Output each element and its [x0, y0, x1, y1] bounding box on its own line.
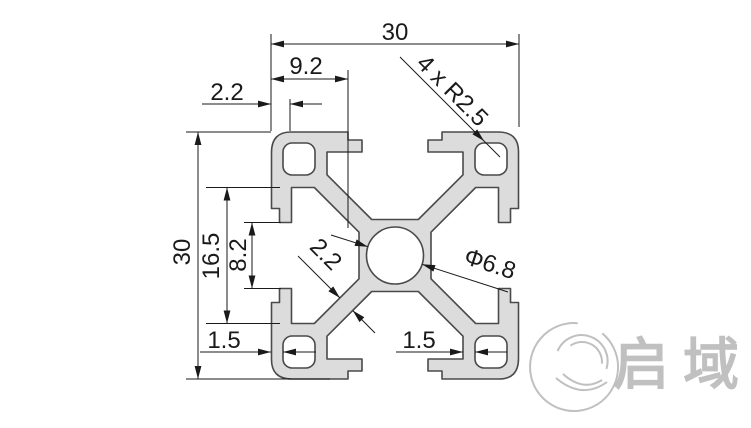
dimension-top-wall: 2.2 [202, 79, 322, 131]
brand-logo: 启域 [530, 323, 751, 411]
dim-label-overall-width: 30 [382, 19, 409, 46]
arrowhead [224, 311, 231, 324]
dim-label-slot-opening: 8.2 [225, 238, 252, 271]
arrowhead [290, 101, 303, 108]
arrowhead [258, 349, 271, 356]
arrowhead [271, 76, 284, 83]
logo-q-inner-arc [571, 342, 602, 364]
arrowhead [249, 223, 256, 236]
dim-label-overall-height: 30 [169, 239, 196, 266]
dim-label-center-bore: Φ6.8 [461, 243, 519, 285]
dim-label-web-thickness: 2.2 [304, 233, 347, 276]
arrowhead [258, 101, 271, 108]
arrowhead [271, 41, 284, 48]
dim-label-channel-inner-width: 16.5 [198, 233, 225, 280]
extrusion-profile-drawing: 启域 30 9.2 2.2 4 x R2.5 [0, 0, 751, 428]
center-bore-hole [367, 227, 424, 284]
arrowhead [335, 76, 348, 83]
dim-label-corner-radii: 4 x R2.5 [411, 50, 493, 132]
logo-wordmark: 启域 [613, 333, 751, 398]
arrowhead [506, 41, 519, 48]
corner-hole-top-left [283, 143, 315, 175]
dim-label-bottom-right-wall: 1.5 [402, 327, 435, 354]
dim-label-top-slot-offset: 9.2 [289, 53, 322, 80]
logo-q-tail-inner [563, 374, 602, 385]
arrowhead [450, 349, 463, 356]
technical-drawing-canvas: 启域 30 9.2 2.2 4 x R2.5 [0, 0, 751, 428]
dim-label-bottom-left-wall: 1.5 [207, 327, 240, 354]
arrowhead [195, 132, 202, 145]
arrowhead [195, 366, 202, 379]
dim-label-top-wall: 2.2 [210, 79, 243, 106]
arrowhead [249, 276, 256, 289]
dimension-slot-opening: 8.2 [225, 223, 281, 289]
arrowhead [224, 188, 231, 201]
